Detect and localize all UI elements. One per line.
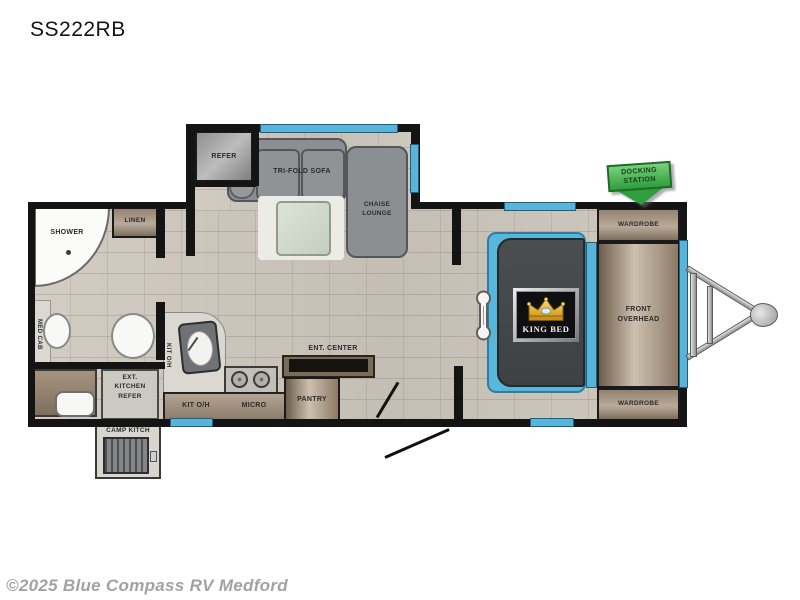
king-bed-label: KING BED [522, 324, 569, 334]
camp-kitchen-label: CAMP KITCH [95, 427, 161, 435]
refer-label: REFER [196, 153, 252, 161]
wall-linen-stub [156, 207, 165, 258]
micro-label: MICRO [228, 402, 280, 410]
tri-fold-sofa-label: TRI-FOLD SOFA [250, 168, 354, 176]
ent-center-screen [289, 359, 368, 372]
front-overhead-line2: OVERHEAD [617, 316, 659, 323]
floorplan-page: SS222RB REFER TRI-FOLD SOFA CHAISE LOUNG… [0, 0, 800, 600]
front-overhead-line1: FRONT [626, 306, 652, 313]
wardrobe-top-label: WARDROBE [597, 221, 680, 229]
toilet [111, 313, 155, 359]
wall-slideout-left [186, 124, 195, 256]
wall-bath-divider [28, 362, 165, 369]
kit-oh-wall-label: KIT O/H [165, 330, 171, 380]
pantry-label: PANTRY [284, 396, 340, 404]
ext-line3: REFER [118, 393, 142, 400]
burner [231, 371, 248, 388]
wall-refer-bottom [192, 181, 256, 187]
med-cab-label: MED CAB [36, 306, 42, 362]
chaise-line2: LOUNGE [362, 210, 392, 217]
kit-oh-counter-label: KIT O/H [168, 402, 224, 410]
page-title: SS222RB [30, 18, 126, 42]
window-slideout-right [410, 144, 419, 193]
copyright-text: ©2025 Blue Compass RV Medford [6, 576, 288, 596]
chaise-line1: CHAISE [364, 201, 390, 208]
wall-bedroom-top-stub [452, 207, 461, 265]
table [276, 201, 331, 256]
crown-icon [524, 297, 568, 323]
hitch-crossbar [690, 273, 697, 357]
window-front-left [586, 242, 597, 388]
tv-bracket-icon [470, 290, 497, 341]
window-front-right [679, 240, 688, 388]
window-bed-top [504, 202, 576, 211]
docking-station-arrow: DOCKING STATION [607, 161, 674, 209]
hitch-coupler [750, 303, 778, 327]
king-bed-plaque: KING BED [513, 288, 579, 342]
bathroom-sink [43, 313, 71, 349]
window-bed-bottom [530, 418, 574, 427]
shower-drain [66, 250, 71, 255]
wall-bath-lower-stub [156, 302, 165, 360]
shower-label: SHOWER [36, 229, 98, 237]
ext-line2: KITCHEN [115, 383, 146, 390]
ext-kitchen-sink [55, 391, 95, 417]
window-kitchen-bottom [170, 418, 213, 427]
burner [253, 371, 270, 388]
wardrobe-bottom-label: WARDROBE [597, 400, 680, 408]
docking-line2: STATION [623, 175, 656, 185]
front-overhead-label: FRONT OVERHEAD [597, 305, 680, 325]
entry-door-swing [384, 428, 449, 459]
camp-griddle [103, 437, 149, 474]
window-slideout-top [260, 124, 398, 133]
linen-label: LINEN [112, 217, 158, 225]
ext-line1: EXT. [123, 374, 138, 381]
wall-bedroom-bottom-stub [454, 366, 463, 422]
ext-kitchen-refer-label: EXT. KITCHEN REFER [101, 373, 159, 401]
wall-bottom [28, 419, 687, 427]
chaise-lounge-label: CHAISE LOUNGE [346, 200, 408, 219]
ent-center-label: ENT. CENTER [294, 345, 372, 353]
griddle-knob [150, 451, 157, 462]
wall-left [28, 202, 35, 427]
hitch-crossbar [707, 286, 713, 344]
wall-refer-right [252, 128, 259, 186]
